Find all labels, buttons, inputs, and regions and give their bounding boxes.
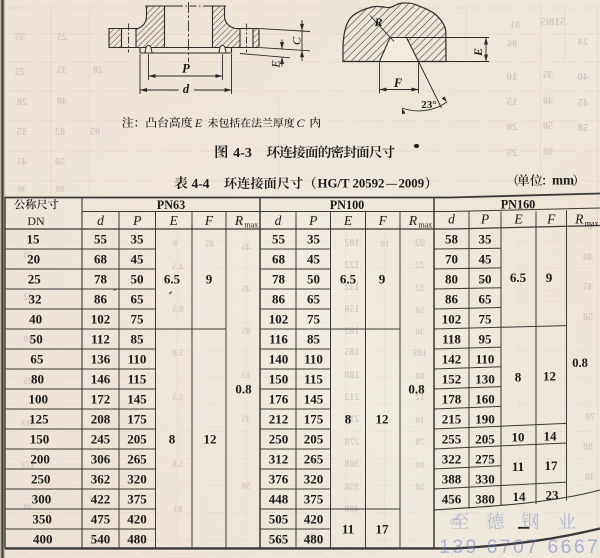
svg-text:58: 58 (415, 305, 425, 315)
svg-text:65: 65 (479, 292, 493, 307)
svg-text:C: C (296, 116, 305, 130)
svg-text:78: 78 (415, 437, 425, 447)
svg-text:110: 110 (128, 352, 147, 367)
svg-text:185: 185 (345, 347, 360, 358)
svg-text:20: 20 (27, 252, 40, 267)
svg-text:P: P (480, 212, 489, 227)
svg-text:265: 265 (304, 452, 324, 467)
svg-text:136: 136 (91, 352, 111, 367)
svg-text:max: max (419, 221, 433, 230)
svg-text:18: 18 (415, 415, 425, 425)
svg-text:362: 362 (91, 472, 111, 487)
svg-text:0.8: 0.8 (235, 382, 252, 397)
svg-text:35: 35 (15, 32, 25, 43)
svg-text:PN100: PN100 (330, 198, 365, 212)
svg-text:60: 60 (543, 147, 553, 158)
svg-text:212: 212 (269, 412, 289, 427)
svg-text:150: 150 (30, 432, 50, 447)
svg-text:130: 130 (475, 372, 495, 387)
svg-text:480: 480 (304, 532, 324, 547)
svg-text:5.0: 5.0 (172, 348, 184, 358)
svg-text:45: 45 (241, 284, 251, 294)
svg-text:45: 45 (205, 239, 215, 249)
svg-text:8: 8 (169, 432, 176, 447)
svg-text:160: 160 (475, 392, 495, 407)
svg-text:23°: 23° (421, 99, 436, 111)
svg-text:10: 10 (512, 430, 525, 445)
svg-text:58: 58 (577, 122, 589, 134)
svg-text:320: 320 (127, 472, 147, 487)
svg-text:PN160: PN160 (501, 198, 536, 212)
svg-text:10: 10 (380, 239, 390, 249)
svg-text:172: 172 (91, 392, 111, 407)
svg-text:5.8: 5.8 (172, 459, 184, 469)
svg-text:E: E (194, 116, 203, 130)
svg-text:40: 40 (583, 252, 593, 263)
svg-text:65: 65 (131, 292, 145, 307)
svg-text:58: 58 (415, 482, 425, 492)
svg-text:322: 322 (442, 452, 462, 467)
svg-text:68: 68 (94, 252, 108, 267)
svg-text:40: 40 (577, 71, 589, 83)
svg-text:45: 45 (583, 282, 593, 293)
svg-text:0.8: 0.8 (408, 382, 425, 397)
svg-text:10: 10 (506, 71, 518, 83)
svg-text:176: 176 (269, 392, 289, 407)
svg-text:145: 145 (127, 392, 147, 407)
svg-text:376: 376 (269, 472, 289, 487)
svg-text:185: 185 (413, 348, 427, 358)
svg-text:540: 540 (91, 532, 111, 547)
svg-text:R: R (234, 213, 244, 228)
svg-text:0.5: 0.5 (172, 304, 184, 314)
svg-text:420: 420 (304, 512, 324, 527)
svg-text:32: 32 (28, 292, 41, 307)
svg-text:320: 320 (304, 472, 324, 487)
svg-text:88: 88 (415, 371, 425, 381)
svg-text:12: 12 (376, 412, 389, 427)
svg-text:565: 565 (269, 532, 289, 547)
svg-text:118: 118 (442, 332, 461, 347)
svg-text:205: 205 (475, 432, 495, 447)
svg-text:250: 250 (269, 432, 289, 447)
svg-text:255: 255 (442, 432, 462, 447)
svg-text:85: 85 (307, 332, 321, 347)
svg-text:40: 40 (29, 312, 42, 327)
svg-text:35: 35 (57, 65, 67, 76)
svg-text:40: 40 (57, 96, 67, 107)
svg-text:15: 15 (241, 370, 251, 380)
svg-text:50: 50 (131, 272, 144, 287)
svg-text:14: 14 (513, 489, 527, 504)
svg-text:E: E (169, 213, 179, 228)
svg-text:45: 45 (17, 157, 27, 168)
svg-text:25: 25 (506, 147, 518, 159)
svg-text:d: d (183, 82, 190, 96)
svg-text:175: 175 (127, 412, 147, 427)
svg-text:178: 178 (442, 392, 462, 407)
svg-text:278: 278 (345, 437, 360, 448)
svg-text:45: 45 (131, 252, 145, 267)
svg-text:115: 115 (304, 372, 323, 387)
svg-text:mm: mm (552, 173, 574, 188)
svg-text:P: P (182, 62, 190, 76)
svg-text:125: 125 (29, 412, 49, 427)
svg-text:E: E (269, 60, 283, 69)
svg-text:55: 55 (272, 232, 286, 247)
svg-text:17: 17 (545, 458, 559, 473)
svg-text:11: 11 (342, 522, 354, 537)
svg-text:86: 86 (94, 292, 108, 307)
svg-text:38: 38 (415, 327, 425, 337)
svg-text:75: 75 (131, 312, 145, 327)
svg-text:9: 9 (379, 272, 386, 287)
svg-text:15: 15 (27, 232, 41, 247)
svg-text:20: 20 (506, 121, 518, 133)
svg-text:06: 06 (507, 39, 517, 50)
svg-text:505: 505 (269, 512, 289, 527)
svg-text:5.5: 5.5 (172, 392, 184, 402)
svg-text:115: 115 (128, 372, 147, 387)
svg-text:25: 25 (15, 67, 25, 78)
svg-text:45: 45 (307, 252, 321, 267)
svg-text:DN: DN (27, 214, 45, 228)
svg-text:8: 8 (345, 412, 352, 427)
svg-text:150: 150 (269, 372, 289, 387)
svg-text:35: 35 (16, 126, 28, 138)
svg-text:6.5: 6.5 (340, 272, 357, 287)
svg-text:15: 15 (506, 96, 518, 108)
svg-text:03: 03 (173, 504, 183, 514)
svg-text:375: 375 (304, 492, 324, 507)
svg-text:102: 102 (442, 312, 462, 327)
svg-text:86: 86 (272, 292, 286, 307)
svg-text:110: 110 (304, 352, 323, 367)
svg-text:308: 308 (345, 459, 360, 470)
svg-text:02: 02 (55, 127, 65, 138)
svg-text:d: d (275, 213, 282, 228)
svg-text:388: 388 (442, 472, 462, 487)
svg-text:70: 70 (585, 412, 595, 423)
svg-text:75: 75 (307, 312, 321, 327)
svg-text:50: 50 (30, 332, 43, 347)
svg-text:12: 12 (204, 432, 217, 447)
svg-text:100: 100 (28, 392, 48, 407)
svg-text:78: 78 (94, 272, 108, 287)
svg-text:58: 58 (445, 232, 459, 247)
svg-text:80: 80 (445, 272, 458, 287)
svg-text:55: 55 (94, 232, 108, 247)
svg-text:86: 86 (445, 292, 459, 307)
svg-text:102: 102 (269, 312, 289, 327)
svg-text:d: d (97, 213, 104, 228)
svg-text:11: 11 (512, 459, 524, 474)
svg-text:30: 30 (17, 184, 27, 194)
svg-text:35: 35 (131, 232, 145, 247)
svg-text:8: 8 (515, 370, 522, 385)
svg-text:22: 22 (415, 260, 425, 270)
svg-text:9: 9 (206, 272, 213, 287)
svg-text:190: 190 (475, 412, 495, 427)
svg-text:212: 212 (345, 392, 360, 403)
svg-text:4-3: 4-3 (233, 146, 252, 161)
svg-text:17: 17 (376, 522, 390, 537)
svg-text:40: 40 (543, 96, 553, 107)
svg-text:45: 45 (241, 242, 251, 252)
svg-text:350: 350 (32, 512, 52, 527)
svg-text:215: 215 (442, 412, 462, 427)
svg-text:98: 98 (583, 442, 593, 453)
svg-text:F: F (204, 213, 214, 228)
svg-text:35: 35 (543, 70, 553, 81)
svg-text:375: 375 (127, 492, 147, 507)
svg-text:65: 65 (30, 352, 44, 367)
svg-text:23: 23 (546, 488, 560, 503)
svg-text:208: 208 (91, 412, 111, 427)
svg-text:400: 400 (33, 532, 53, 547)
svg-text:75: 75 (479, 312, 493, 327)
svg-text:245: 245 (91, 432, 111, 447)
svg-text:32: 32 (415, 283, 425, 293)
svg-text:142: 142 (442, 352, 462, 367)
svg-text:12: 12 (543, 369, 556, 384)
svg-text:358: 358 (345, 482, 360, 493)
svg-text:25: 25 (28, 272, 42, 287)
svg-text:4-4: 4-4 (192, 176, 210, 191)
svg-text:max: max (585, 219, 599, 228)
svg-text:85: 85 (131, 332, 145, 347)
svg-text:78: 78 (272, 272, 286, 287)
svg-text:145: 145 (304, 392, 324, 407)
svg-text:146: 146 (91, 372, 111, 387)
svg-text:456: 456 (442, 492, 462, 507)
svg-text:205: 205 (304, 432, 324, 447)
svg-text:0: 0 (172, 238, 177, 248)
svg-text:HG/T 20592: HG/T 20592 (318, 177, 385, 191)
svg-text:140: 140 (269, 352, 289, 367)
svg-text:24: 24 (578, 37, 588, 48)
svg-text:448: 448 (269, 492, 289, 507)
svg-text:312: 312 (269, 452, 289, 467)
svg-text:265: 265 (127, 452, 147, 467)
svg-text:300: 300 (32, 492, 52, 507)
svg-text:05: 05 (90, 127, 100, 138)
svg-text:09: 09 (55, 184, 65, 194)
svg-text:E: E (471, 48, 485, 57)
svg-text:45: 45 (479, 252, 493, 267)
svg-text:6.5: 6.5 (510, 270, 527, 285)
svg-text:50: 50 (241, 481, 251, 491)
svg-text:6.5: 6.5 (164, 272, 181, 287)
svg-text:205: 205 (127, 432, 147, 447)
svg-text:4.5: 4.5 (172, 262, 184, 272)
svg-text:152: 152 (442, 372, 462, 387)
svg-text:58: 58 (583, 312, 593, 323)
svg-text:35: 35 (479, 232, 493, 247)
svg-text:PN63: PN63 (157, 198, 185, 212)
svg-text:518i5: 518i5 (540, 16, 566, 28)
svg-text:F: F (378, 213, 388, 228)
svg-text:380: 380 (475, 492, 495, 507)
svg-text:50: 50 (543, 121, 553, 132)
svg-text:112: 112 (91, 332, 110, 347)
svg-text:122: 122 (345, 260, 360, 271)
svg-text:110: 110 (476, 352, 495, 367)
svg-text:25: 25 (57, 32, 67, 43)
svg-text:480: 480 (127, 532, 147, 547)
svg-text:275: 275 (475, 452, 495, 467)
svg-text:102: 102 (345, 238, 360, 249)
svg-text:R: R (373, 15, 382, 29)
svg-text:68: 68 (272, 252, 286, 267)
svg-text:9: 9 (546, 270, 553, 285)
svg-text:45: 45 (577, 97, 589, 109)
svg-text:475: 475 (91, 512, 111, 527)
svg-text:P: P (132, 213, 141, 228)
svg-text:306: 306 (91, 452, 111, 467)
svg-text:50: 50 (55, 157, 65, 168)
svg-text:05: 05 (241, 326, 251, 336)
svg-text:139 6707 6667: 139 6707 6667 (439, 536, 600, 558)
svg-text:02: 02 (415, 238, 425, 249)
svg-text:E: E (513, 212, 523, 227)
svg-text:200: 200 (30, 452, 50, 467)
svg-text:max: max (245, 221, 259, 230)
svg-text:80: 80 (31, 372, 44, 387)
svg-text:0.8: 0.8 (572, 356, 588, 370)
svg-text:08: 08 (415, 460, 425, 470)
svg-text:116: 116 (269, 332, 288, 347)
svg-text:F: F (393, 76, 403, 90)
svg-text:188: 188 (345, 370, 360, 381)
svg-text:E: E (343, 213, 353, 228)
svg-text:R: R (408, 213, 418, 228)
svg-text:d: d (448, 212, 455, 227)
svg-text:35: 35 (307, 232, 321, 247)
svg-text:14: 14 (544, 429, 558, 444)
svg-text:95: 95 (479, 332, 493, 347)
svg-text:2009: 2009 (399, 177, 425, 191)
svg-text:250: 250 (31, 472, 51, 487)
svg-text:01: 01 (510, 20, 520, 31)
svg-text:330: 330 (475, 472, 495, 487)
svg-text:C: C (290, 36, 304, 45)
svg-text:50: 50 (307, 272, 320, 287)
svg-text:175: 175 (304, 412, 324, 427)
svg-text:102: 102 (91, 312, 111, 327)
svg-text:35: 35 (241, 414, 251, 424)
svg-text:28: 28 (17, 97, 27, 108)
svg-text:70: 70 (445, 252, 458, 267)
svg-text:65: 65 (307, 292, 321, 307)
svg-text:28: 28 (93, 65, 103, 76)
svg-text:R: R (574, 212, 584, 227)
svg-text:420: 420 (127, 512, 147, 527)
svg-text:422: 422 (91, 492, 111, 507)
svg-text:162: 162 (345, 326, 360, 337)
svg-text:158: 158 (345, 304, 360, 315)
svg-text:F: F (546, 212, 556, 227)
svg-text:30: 30 (585, 472, 595, 483)
svg-text:P: P (308, 213, 317, 228)
